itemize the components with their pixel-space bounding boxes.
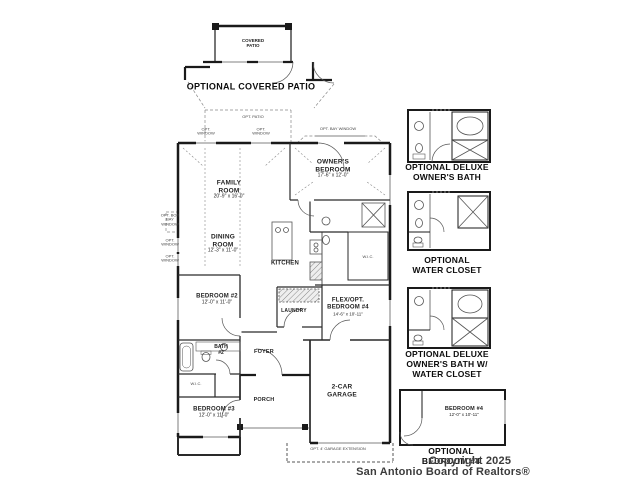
opt-window-annotation: OPT. WINDOW: [161, 239, 179, 248]
optional-water-closet-caption: OPTIONAL WATER CLOSET: [412, 255, 481, 275]
caption-line: OPTIONAL DELUXE: [405, 349, 489, 359]
floor-plan-linework: [0, 0, 640, 480]
tub-icon: [457, 117, 483, 135]
toilet-icon: [416, 144, 423, 153]
flex-bedroom4-label: FLEX/OPT. BEDROOM #4 14'-6" x 10'-11": [323, 297, 373, 316]
flex-bedroom4-dims: 14'-6" x 10'-11": [323, 311, 373, 316]
opt-box-bay-window-annotation: OPT. BOX BAY WINDOW: [159, 213, 181, 226]
caption-line: OWNER'S BATH: [405, 172, 489, 182]
washer-dryer-icon: [279, 289, 319, 302]
wic-label: W.I.C.: [191, 382, 202, 386]
opt-window-annotation: OPT. WINDOW: [197, 128, 215, 137]
sink-icon: [415, 297, 424, 306]
family-room-label: FAMILY ROOM 20'-9" x 16'-0": [209, 179, 249, 200]
opt-bay-window-annotation: OPT. BAY WINDOW: [320, 127, 356, 131]
family-room-name: FAMILY ROOM: [209, 179, 249, 194]
opt-patio-annotation: OPT. PATIO: [242, 115, 263, 119]
island-sink-icon: [284, 228, 289, 233]
island-sink-icon: [276, 228, 281, 233]
bath-sink-icon: [322, 217, 330, 225]
copyright-watermark-line2: San Antonio Board of Realtors®: [356, 466, 530, 478]
laundry-label: LAUNDRY: [281, 309, 307, 315]
sink-icon: [415, 122, 424, 131]
caption-line: OPTIONAL: [412, 255, 481, 265]
owners-bedroom-name: OWNER'S BEDROOM: [312, 158, 354, 173]
caption-line: WATER CLOSET: [405, 369, 489, 379]
range-icon: [310, 262, 322, 280]
toilet-icon: [323, 236, 330, 245]
bedroom3-dims: 12'-0" x 11'-0": [193, 414, 235, 420]
wic-label: W.I.C.: [363, 255, 374, 259]
optional-bedroom4-room-label: BEDROOM #4 12'-0" x 10'-11": [445, 406, 483, 418]
family-room-dims: 20'-9" x 16'-0": [209, 195, 249, 201]
floor-plan-sheet: COVERED PATIO OPTIONAL COVERED PATIO OPT…: [0, 0, 640, 480]
caption-line: OPTIONAL DELUXE: [405, 162, 489, 172]
opt-window-annotation: OPT. WINDOW: [252, 128, 270, 137]
toilet-icon: [414, 335, 422, 341]
bedroom2-dims: 12'-0" x 11'-0": [196, 301, 238, 307]
optional-deluxe-owners-bath-caption: OPTIONAL DELUXE OWNER'S BATH: [405, 162, 489, 182]
garage-label: 2-CAR GARAGE: [324, 383, 360, 398]
optional-water-closet-plan: [408, 192, 490, 250]
optional-bedroom4-dims: 12'-0" x 10'-11": [445, 413, 483, 418]
caption-line: WATER CLOSET: [412, 265, 481, 275]
kitchen-island: [272, 222, 292, 260]
dining-room-dims: 12'-3" x 11'-0": [207, 249, 239, 255]
optional-deluxe-bath-wc-caption: OPTIONAL DELUXE OWNER'S BATH W/ WATER CL…: [405, 349, 489, 379]
opt-window-annotation: OPT. WINDOW: [161, 255, 179, 264]
covered-patio-label: COVERED PATIO: [235, 38, 271, 48]
toilet-icon: [414, 237, 422, 243]
dining-room-label: DINING ROOM 12'-3" x 11'-0": [207, 233, 239, 254]
foyer-label: FOYER: [254, 349, 274, 355]
opt-garage-extension-annotation: OPT. 4' GARAGE EXTENSION: [310, 447, 365, 451]
optional-covered-patio-caption: OPTIONAL COVERED PATIO: [187, 82, 316, 93]
optional-covered-patio-plan: [185, 23, 334, 108]
owners-bedroom-dims: 17'-6" x 12'-0": [312, 174, 354, 180]
bath2-label: BATH #2: [211, 345, 231, 357]
sink-icon: [415, 201, 424, 210]
tub-icon: [458, 295, 482, 313]
flex-bedroom4-name: FLEX/OPT. BEDROOM #4: [323, 297, 373, 311]
toilet-icon: [202, 353, 210, 362]
toilet-icon: [416, 219, 423, 228]
caption-line: OWNER'S BATH W/: [405, 359, 489, 369]
bedroom2-label: BEDROOM #2 12'-0" x 11'-0": [196, 294, 238, 307]
kitchen-label: KITCHEN: [271, 260, 299, 267]
optional-deluxe-owners-bath-plan: [408, 110, 490, 162]
bedroom3-label: BEDROOM #3 12'-0" x 11'-0": [193, 407, 235, 420]
tub-icon: [180, 343, 193, 371]
dining-room-name: DINING ROOM: [207, 233, 239, 248]
optional-deluxe-bath-water-closet-plan: [408, 288, 490, 348]
porch-label: PORCH: [254, 397, 275, 403]
owners-bedroom-label: OWNER'S BEDROOM 17'-6" x 12'-0": [312, 158, 354, 179]
